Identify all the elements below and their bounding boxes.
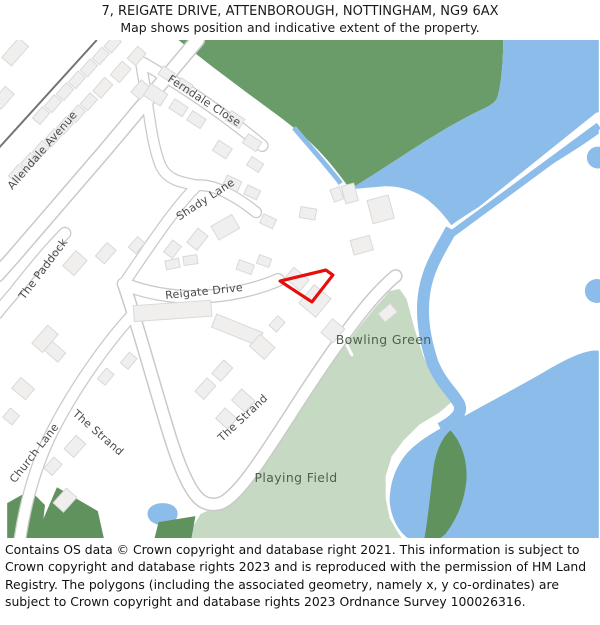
property-address-title: 7, REIGATE DRIVE, ATTENBOROUGH, NOTTINGH… [0,0,600,20]
map-canvas: Allendale Avenue Ferndale Close Shady La… [0,40,600,538]
map-header: 7, REIGATE DRIVE, ATTENBOROUGH, NOTTINGH… [0,0,600,40]
map-subtitle: Map shows position and indicative extent… [0,20,600,36]
os-map: Allendale Avenue Ferndale Close Shady La… [0,40,600,538]
copyright-footer: Contains OS data © Crown copyright and d… [0,538,600,610]
label-bowling-green: Bowling Green [336,332,432,347]
label-playing-field: Playing Field [255,470,338,485]
page: 7, REIGATE DRIVE, ATTENBOROUGH, NOTTINGH… [0,0,600,625]
